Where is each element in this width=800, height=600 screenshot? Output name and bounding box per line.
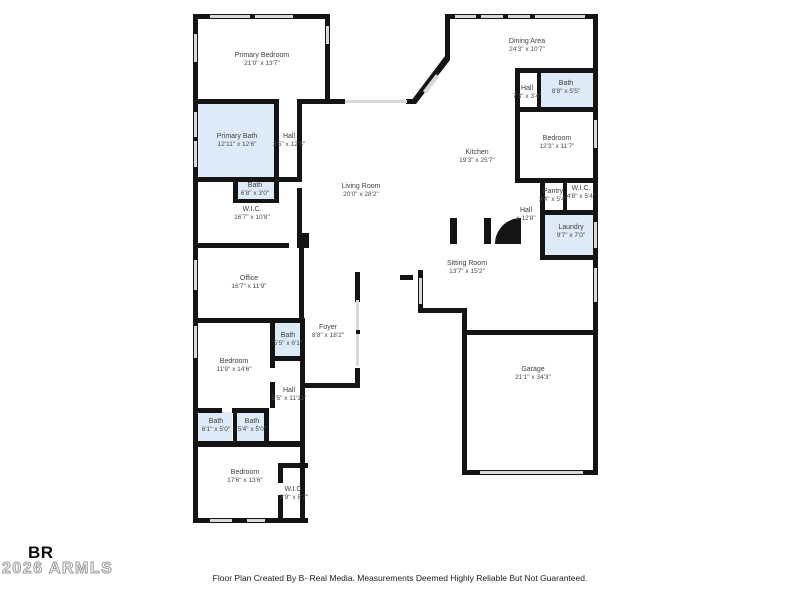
floor-plan-drawing: [0, 0, 800, 600]
floor-plan-page: Primary Bedroom21'0" x 13'7" Primary Bat…: [0, 0, 800, 600]
walls: [193, 14, 598, 523]
small-bath-fill: [233, 181, 275, 201]
armls-watermark: 2026 ARMLS: [2, 560, 113, 578]
lower-left-bath-fill: [198, 412, 232, 441]
disclaimer-text: Floor Plan Created By B- Real Media. Mea…: [213, 573, 588, 583]
laundry-fill: [545, 213, 594, 256]
upper-right-bath-fill: [540, 72, 594, 108]
mid-bath-fill: [275, 322, 301, 357]
lower-mid-bath-fill: [237, 412, 265, 441]
branding-block: BR 2026 ARMLS: [0, 540, 130, 585]
primary-bath-fill: [198, 104, 275, 179]
bath-room-fills: [198, 72, 594, 441]
